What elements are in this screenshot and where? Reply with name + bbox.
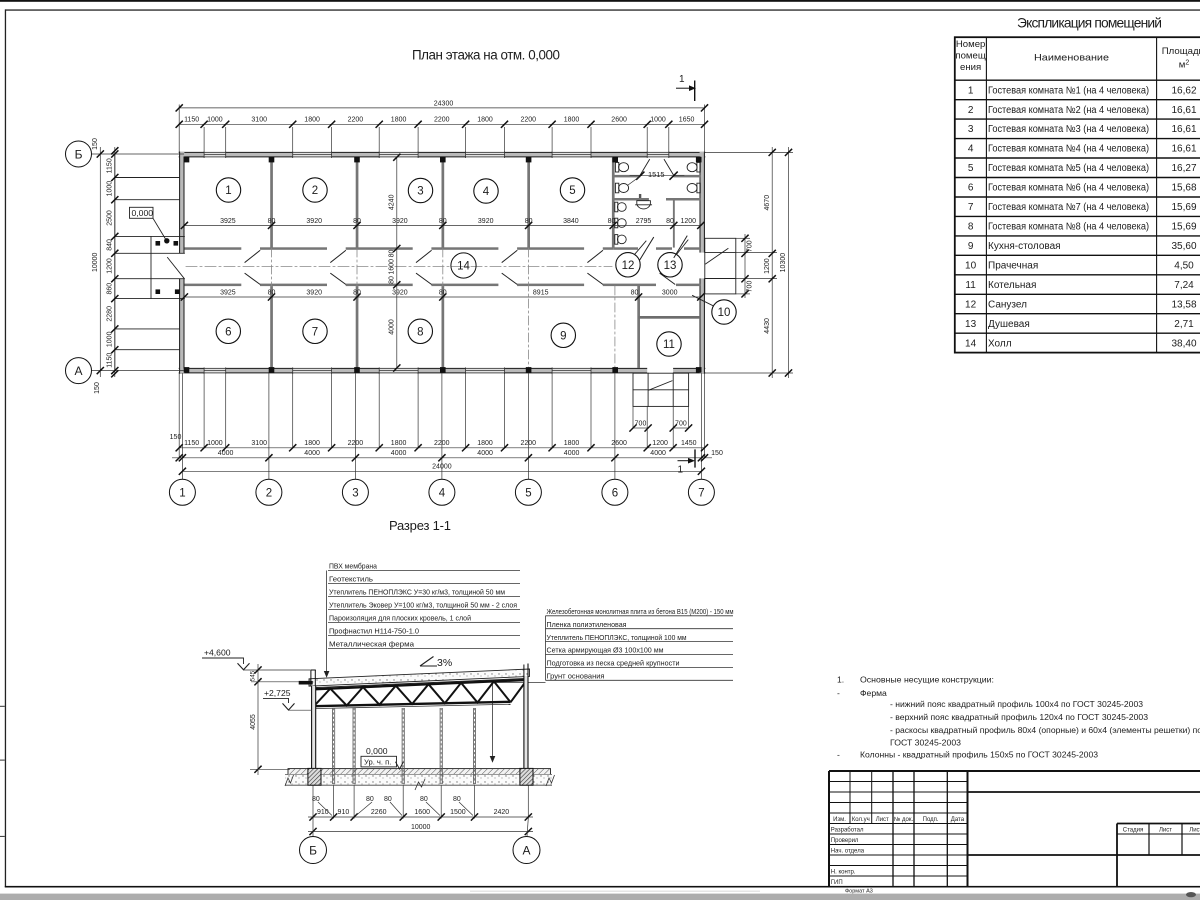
svg-text:840: 840 [107,239,114,251]
svg-text:2: 2 [968,105,974,116]
svg-text:14: 14 [965,338,977,349]
svg-text:2600: 2600 [611,440,627,447]
svg-text:2420: 2420 [494,809,510,816]
svg-text:150: 150 [170,434,182,441]
svg-text:Площадь,: Площадь, [1162,46,1200,57]
svg-text:1000: 1000 [107,181,114,197]
svg-text:3100: 3100 [251,117,267,124]
svg-text:Наименование: Наименование [1034,53,1109,64]
svg-text:5: 5 [968,163,974,174]
svg-text:Холл: Холл [988,338,1012,349]
svg-text:1800: 1800 [304,117,320,124]
svg-text:Гостевая комната №4 (на 4 чело: Гостевая комната №4 (на 4 человека) [988,144,1149,155]
svg-text:1800: 1800 [564,117,580,124]
svg-text:Н. контр.: Н. контр. [831,869,856,875]
svg-text:5: 5 [569,185,575,197]
svg-text:4000: 4000 [389,319,396,335]
svg-text:3920: 3920 [392,218,408,225]
svg-text:Гостевая комната №8 (на 4 чело: Гостевая комната №8 (на 4 человека) [988,222,1149,233]
svg-text:9: 9 [560,331,566,343]
svg-text:14: 14 [457,261,470,273]
svg-text:4000: 4000 [650,450,666,457]
svg-text:80: 80 [608,218,616,225]
svg-text:80: 80 [389,276,396,284]
svg-text:1800: 1800 [564,440,580,447]
svg-text:80: 80 [268,289,276,296]
svg-text:1150: 1150 [184,440,199,447]
svg-text:1200: 1200 [107,258,114,274]
svg-text:Прачечная: Прачечная [988,261,1038,272]
svg-text:15,69: 15,69 [1171,222,1196,233]
svg-text:80: 80 [312,796,320,803]
svg-text:10: 10 [965,261,977,272]
svg-text:Утеплитель Эковер У=100 кг/м3,: Утеплитель Эковер У=100 кг/м3, толщиной … [329,601,517,610]
svg-text:4: 4 [968,144,974,155]
svg-text:1500: 1500 [450,809,466,816]
svg-text:- верхний пояс квадратный проф: - верхний пояс квадратный профиль 120х4 … [890,712,1148,722]
svg-text:9: 9 [968,241,974,252]
svg-text:13: 13 [664,260,677,272]
svg-text:Экспликация помещений: Экспликация помещений [1017,16,1162,31]
svg-text:13: 13 [965,319,977,330]
svg-text:Подготовка из песка средней кр: Подготовка из песка средней крупности [547,659,680,668]
svg-text:Грунт основания: Грунт основания [547,672,605,681]
svg-text:3100: 3100 [251,440,267,447]
svg-text:А: А [74,364,82,378]
svg-text:8915: 8915 [533,289,549,296]
svg-text:80: 80 [353,289,361,296]
svg-text:м2: м2 [1179,60,1190,71]
svg-text:Утеплитель ПЕНОПЛЭКС У=30 кг/м: Утеплитель ПЕНОПЛЭКС У=30 кг/м3, толщино… [329,588,505,597]
svg-text:1200: 1200 [681,218,697,225]
svg-text:3000: 3000 [662,289,678,296]
svg-text:2,71: 2,71 [1174,319,1194,330]
svg-text:1150: 1150 [107,158,114,173]
svg-text:7: 7 [312,327,318,339]
svg-text:Гостевая комната №1 (на 4 чело: Гостевая комната №1 (на 4 человека) [988,85,1149,96]
svg-text:1600: 1600 [389,259,396,275]
svg-text:Листов: Листов [1189,828,1200,834]
svg-text:Стадия: Стадия [1123,828,1143,834]
svg-text:Лист: Лист [1159,828,1172,834]
svg-text:6: 6 [225,327,231,339]
svg-text:-: - [837,688,840,698]
svg-text:10: 10 [718,307,731,319]
svg-text:2795: 2795 [636,218,652,225]
svg-text:Изм.: Изм. [833,817,846,823]
svg-text:ения: ения [960,62,981,73]
svg-text:150: 150 [94,382,101,394]
svg-text:Санузел: Санузел [988,299,1027,310]
svg-text:Б: Б [309,843,317,857]
svg-text:1450: 1450 [681,440,697,447]
svg-text:12: 12 [622,260,635,272]
svg-text:-: - [837,750,840,760]
svg-text:1: 1 [968,85,974,96]
svg-text:16,27: 16,27 [1171,163,1196,174]
svg-text:2600: 2600 [611,117,627,124]
svg-text:3920: 3920 [306,218,322,225]
svg-text:2260: 2260 [371,809,387,816]
svg-text:1200: 1200 [764,258,771,274]
svg-text:80: 80 [268,218,276,225]
svg-text:4055: 4055 [250,714,257,730]
svg-text:Пленка полиэтиленовая: Пленка полиэтиленовая [547,620,627,629]
svg-text:3925: 3925 [220,289,236,296]
svg-text:6: 6 [612,488,618,500]
svg-text:Геотекстиль: Геотекстиль [329,575,373,584]
svg-text:2200: 2200 [348,440,364,447]
svg-text:ГИП: ГИП [831,880,843,886]
svg-text:ПВХ мембрана: ПВХ мембрана [329,562,378,571]
svg-text:24000: 24000 [432,464,452,471]
svg-text:1800: 1800 [304,440,320,447]
svg-text:А: А [522,843,530,857]
svg-text:1: 1 [678,465,684,476]
svg-text:80: 80 [384,796,392,803]
svg-text:2200: 2200 [521,117,537,124]
svg-text:2200: 2200 [434,117,450,124]
svg-text:3%: 3% [437,657,452,669]
svg-text:16,61: 16,61 [1171,105,1196,116]
svg-text:7,24: 7,24 [1174,280,1194,291]
svg-text:Гостевая комната №2 (на 4 чело: Гостевая комната №2 (на 4 человека) [988,105,1149,116]
svg-text:1.: 1. [837,675,844,685]
svg-text:помещ: помещ [955,51,985,62]
svg-text:Гостевая комната №5 (на 4 чело: Гостевая комната №5 (на 4 человека) [988,163,1149,174]
svg-text:1800: 1800 [477,440,493,447]
svg-text:80: 80 [420,796,428,803]
svg-text:2500: 2500 [107,210,114,226]
svg-text:1150: 1150 [107,353,114,368]
svg-text:Профнастил Н114-750-1.0: Профнастил Н114-750-1.0 [329,627,419,636]
svg-text:860: 860 [107,283,114,295]
svg-text:15,69: 15,69 [1171,202,1196,213]
svg-text:1: 1 [679,74,685,85]
svg-text:+2,725: +2,725 [264,688,291,698]
svg-text:7: 7 [698,488,704,500]
svg-text:Разработал: Разработал [831,827,864,833]
svg-text:2280: 2280 [107,306,114,322]
svg-text:80: 80 [439,289,447,296]
svg-text:10300: 10300 [780,253,787,273]
svg-text:4,50: 4,50 [1174,261,1194,272]
svg-text:16,62: 16,62 [1171,85,1196,96]
svg-text:38,40: 38,40 [1171,338,1196,349]
svg-text:7: 7 [968,202,974,213]
svg-text:4240: 4240 [389,194,396,210]
svg-text:1150: 1150 [184,117,199,124]
svg-text:3920: 3920 [478,218,494,225]
svg-text:700: 700 [635,421,647,428]
svg-text:Формат А3: Формат А3 [845,889,873,895]
svg-text:700: 700 [675,421,687,428]
svg-text:1: 1 [179,488,185,500]
svg-text:План этажа на отм. 0,000: План этажа на отм. 0,000 [412,48,560,63]
svg-text:80: 80 [525,218,533,225]
svg-text:11: 11 [965,280,976,291]
svg-text:Ферма: Ферма [860,688,887,698]
svg-text:0,000: 0,000 [366,746,388,756]
svg-text:150: 150 [711,450,723,457]
svg-text:Лист: Лист [876,817,889,823]
svg-text:Б: Б [75,147,83,161]
svg-text:3920: 3920 [392,289,408,296]
svg-text:1000: 1000 [650,117,666,124]
svg-text:Котельная: Котельная [988,280,1036,291]
svg-text:10000: 10000 [411,824,431,831]
svg-text:1: 1 [225,185,231,197]
svg-text:2200: 2200 [348,117,364,124]
svg-text:3920: 3920 [306,289,322,296]
svg-text:3: 3 [417,186,423,198]
svg-text:Разрез 1-1: Разрез 1-1 [389,518,451,533]
svg-text:4000: 4000 [477,450,493,457]
svg-text:1000: 1000 [207,440,223,447]
svg-text:Гостевая комната №7 (на 4 чело: Гостевая комната №7 (на 4 человека) [988,202,1149,213]
svg-text:4000: 4000 [564,450,580,457]
svg-text:24300: 24300 [434,100,454,107]
svg-text:4000: 4000 [391,450,407,457]
svg-text:35,60: 35,60 [1171,241,1196,252]
svg-text:Сетка армирующая Ø3 100х100 мм: Сетка армирующая Ø3 100х100 мм [547,646,664,655]
svg-text:80: 80 [453,796,461,803]
svg-text:1000: 1000 [107,331,114,347]
svg-text:Кол.уч: Кол.уч [852,817,870,823]
svg-text:5: 5 [525,488,531,500]
svg-text:- нижний пояс квадратный профи: - нижний пояс квадратный профиль 100х4 п… [890,699,1143,709]
svg-text:Основные несущие конструкции:: Основные несущие конструкции: [860,675,994,685]
svg-text:16,61: 16,61 [1171,124,1196,135]
svg-text:1515: 1515 [648,170,664,179]
svg-text:4: 4 [483,186,490,198]
svg-text:6: 6 [968,183,974,194]
svg-text:2200: 2200 [521,440,537,447]
svg-text:2200: 2200 [434,440,450,447]
svg-text:Душевая: Душевая [988,319,1030,330]
svg-text:1200: 1200 [652,440,668,447]
svg-text:4: 4 [439,488,446,500]
svg-text:4670: 4670 [764,195,771,211]
svg-text:1800: 1800 [391,440,407,447]
svg-text:0,000: 0,000 [132,208,154,218]
svg-text:ГОСТ 30245-2003: ГОСТ 30245-2003 [890,738,961,748]
svg-text:3925: 3925 [220,218,236,225]
svg-text:910: 910 [338,809,350,816]
svg-text:10000: 10000 [92,252,99,272]
svg-text:80: 80 [439,218,447,225]
svg-text:700: 700 [747,281,754,293]
svg-text:1800: 1800 [477,117,493,124]
svg-text:1000: 1000 [207,117,223,124]
svg-text:3840: 3840 [563,218,579,225]
svg-text:150: 150 [92,138,99,150]
svg-text:11: 11 [663,339,675,351]
svg-text:Ур. ч. п.: Ур. ч. п. [364,758,391,767]
svg-text:Номер: Номер [956,39,986,50]
svg-text:80: 80 [666,218,674,225]
svg-text:Нач. отдела: Нач. отдела [831,848,865,854]
svg-text:80: 80 [389,250,396,258]
svg-text:12: 12 [965,299,977,310]
svg-text:2: 2 [312,185,318,197]
svg-text:- раскосы квадратный профиль 8: - раскосы квадратный профиль 80х4 (опорн… [890,725,1200,735]
svg-text:80: 80 [366,796,374,803]
svg-text:8: 8 [968,222,974,233]
svg-text:3: 3 [352,488,358,500]
svg-text:Проверил: Проверил [831,838,859,844]
svg-text:+4,600: +4,600 [204,648,231,658]
svg-text:4000: 4000 [304,450,320,457]
svg-text:Кухня-столовая: Кухня-столовая [988,241,1061,252]
svg-text:16,61: 16,61 [1171,144,1196,155]
svg-text:Пароизоляция для плоских крове: Пароизоляция для плоских кровель, 1 слой [329,614,471,623]
svg-text:Дата: Дата [951,817,965,823]
svg-text:Утеплитель ПЕНОПЛЭКС, толщиной: Утеплитель ПЕНОПЛЭКС, толщиной 100 мм [547,633,687,642]
svg-text:2: 2 [266,488,272,500]
svg-text:8: 8 [417,327,423,339]
svg-text:3: 3 [968,124,974,135]
svg-text:Гостевая комната №6 (на 4 чело: Гостевая комната №6 (на 4 человека) [988,183,1149,194]
svg-text:1650: 1650 [679,117,695,124]
svg-text:Гостевая комната №3 (на 4 чело: Гостевая комната №3 (на 4 человека) [988,124,1149,135]
svg-text:№ док.: № док. [894,816,914,823]
svg-text:15,68: 15,68 [1171,183,1196,194]
svg-text:1600: 1600 [414,809,430,816]
svg-text:545: 545 [250,670,257,681]
svg-text:Металлическая ферма: Металлическая ферма [329,640,415,649]
svg-text:Подп.: Подп. [923,817,939,823]
svg-text:80: 80 [631,289,639,296]
svg-text:4000: 4000 [218,450,234,457]
svg-text:Колонны - квадратный профиль 1: Колонны - квадратный профиль 150х5 по ГО… [860,750,1098,760]
svg-text:13,58: 13,58 [1171,299,1196,310]
svg-text:1800: 1800 [391,117,407,124]
svg-text:Железобетонная монолитная плит: Железобетонная монолитная плита из бетон… [547,607,734,616]
svg-text:80: 80 [353,218,361,225]
svg-text:700: 700 [747,240,754,252]
svg-text:4430: 4430 [764,318,771,334]
